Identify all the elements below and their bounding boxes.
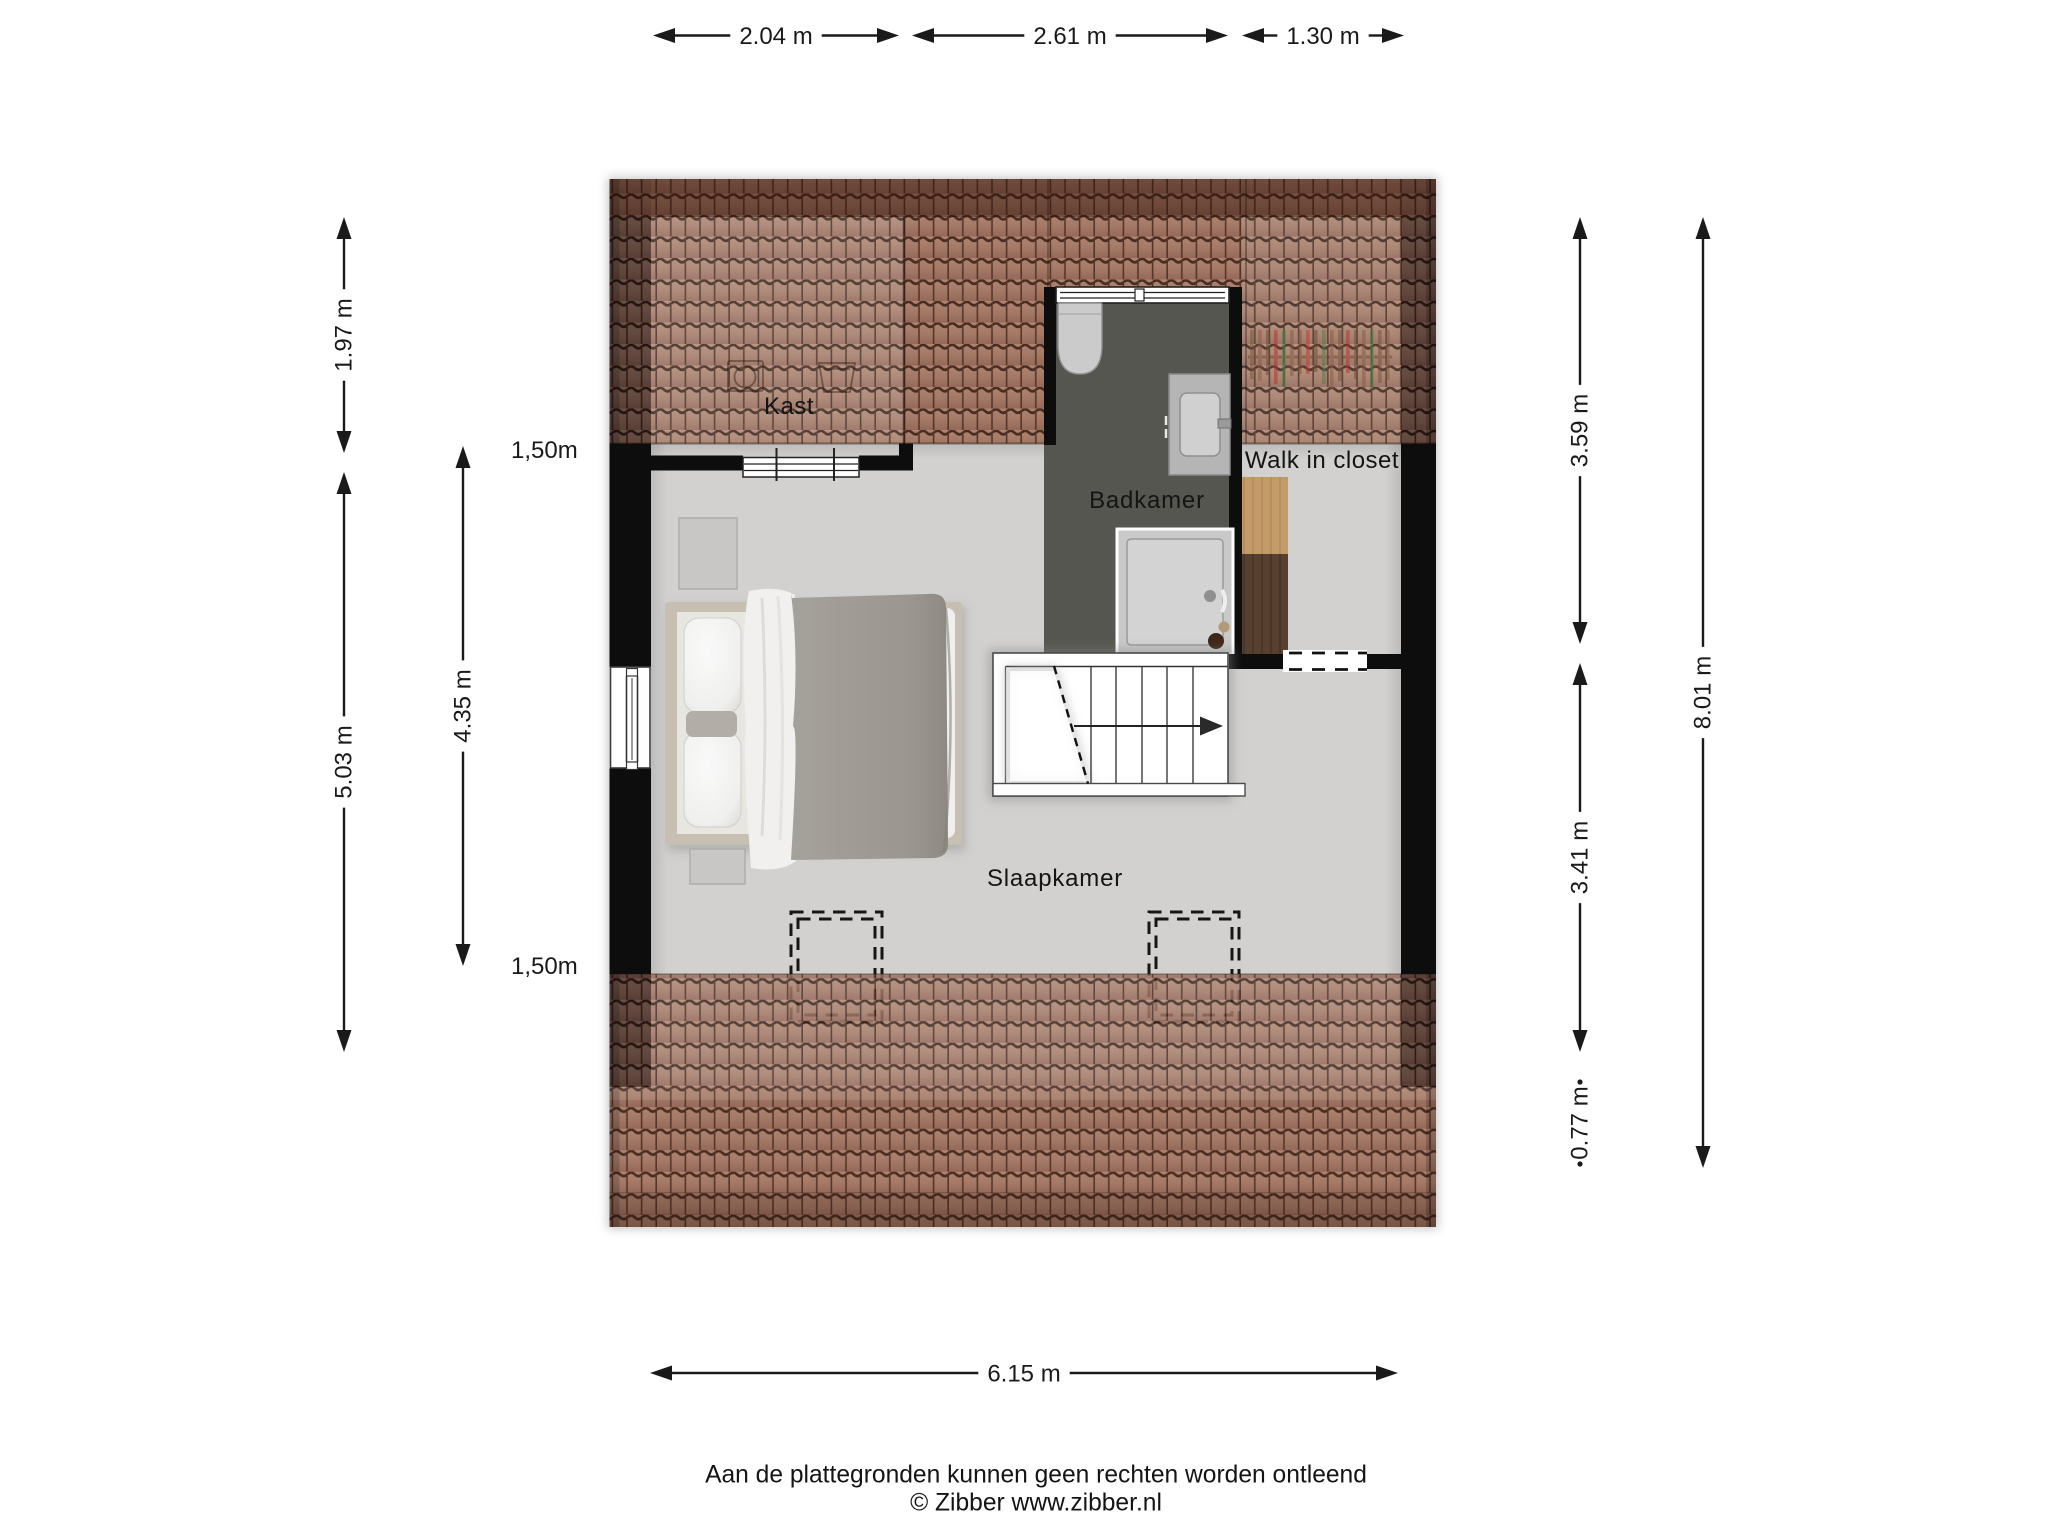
svg-text:1,50m: 1,50m xyxy=(511,437,578,464)
svg-text:2.61 m: 2.61 m xyxy=(1033,23,1106,50)
svg-text:© Zibber www.zibber.nl: © Zibber www.zibber.nl xyxy=(910,1490,1162,1517)
svg-text:3.41 m: 3.41 m xyxy=(1567,821,1594,894)
svg-text:6.15 m: 6.15 m xyxy=(987,1361,1060,1388)
svg-text:4.35 m: 4.35 m xyxy=(450,669,477,742)
svg-text:3.59 m: 3.59 m xyxy=(1567,394,1594,467)
svg-text:8.01 m: 8.01 m xyxy=(1690,656,1717,729)
svg-text:Badkamer: Badkamer xyxy=(1089,487,1205,514)
svg-text:Slaapkamer: Slaapkamer xyxy=(987,865,1123,892)
svg-text:Walk in closet: Walk in closet xyxy=(1245,447,1399,474)
svg-text:5.03 m: 5.03 m xyxy=(331,725,358,798)
svg-text:1.30 m: 1.30 m xyxy=(1286,23,1359,50)
svg-text:2.04 m: 2.04 m xyxy=(739,23,812,50)
svg-text:Aan de plattegronden kunnen ge: Aan de plattegronden kunnen geen rechten… xyxy=(705,1462,1367,1489)
svg-text:1,50m: 1,50m xyxy=(511,953,578,980)
svg-text:Kast: Kast xyxy=(764,393,814,420)
svg-text:1.97 m: 1.97 m xyxy=(331,298,358,371)
svg-text:0.77 m: 0.77 m xyxy=(1567,1086,1594,1159)
